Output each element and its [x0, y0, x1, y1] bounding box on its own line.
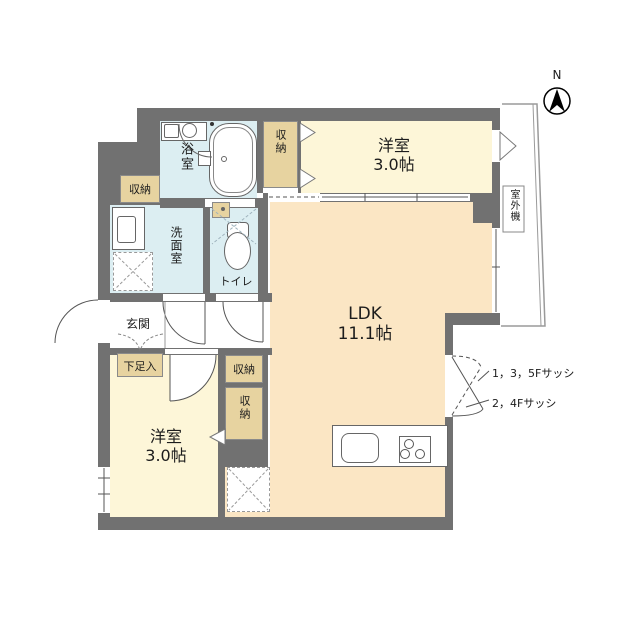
- bedroom-bottom-size: 3.0帖: [116, 446, 216, 465]
- remote-panel-dot: [221, 207, 225, 211]
- label-compass-north: N: [549, 68, 565, 82]
- shoe-cabinet-door-arcs: [118, 334, 163, 351]
- burner-icon: [416, 450, 425, 459]
- label-washroom: 洗面室: [168, 226, 185, 265]
- label-bedroom-bottom: 洋室 3.0帖: [116, 427, 216, 465]
- closet-door-triangle-icon: [300, 123, 315, 142]
- label-storage-hall: 収納: [225, 361, 263, 377]
- ldk-name: LDK: [315, 304, 415, 324]
- label-toilet: トイレ: [214, 273, 258, 289]
- label-sash-135: 1，3，5Fサッシ: [492, 365, 574, 381]
- label-storage-bedroom-top: 収納: [272, 129, 288, 155]
- label-bathroom: 浴室: [176, 142, 195, 172]
- burner-icon: [405, 440, 414, 449]
- washer-x-mark: [115, 254, 151, 289]
- bedroom-bottom-name: 洋室: [116, 427, 216, 446]
- label-ldk: LDK 11.1帖: [315, 304, 415, 344]
- label-storage-bedroom-bottom: 収納: [236, 395, 252, 421]
- label-storage-top-left: 収納: [120, 181, 160, 197]
- closet-door-triangle-icon: [300, 169, 315, 188]
- label-outdoor-unit: 室外機: [506, 189, 521, 222]
- ldk-window-line: [492, 229, 500, 312]
- bedroom-top-size: 3.0帖: [344, 155, 444, 174]
- bathroom-door-hinge: [210, 122, 214, 126]
- label-sash-24: 2，4Fサッシ: [492, 395, 556, 411]
- ldk-size: 11.1帖: [315, 324, 415, 344]
- floor-plan: 浴室 収納 収納 洋室 3.0帖 室外機 洗面室 トイレ 玄関 下足入 収納 収…: [0, 0, 640, 640]
- bedroom-top-name: 洋室: [344, 136, 444, 155]
- bedroom-window-line: [98, 468, 110, 512]
- refrigerator-x-mark: [229, 469, 268, 510]
- sliding-partition-line: [322, 193, 468, 201]
- sash-leader-lines: [466, 371, 489, 407]
- label-bedroom-top: 洋室 3.0帖: [344, 136, 444, 174]
- entrance-door-arc: [55, 300, 98, 343]
- balcony-rail-line: [533, 104, 541, 326]
- toilet-door-dashes: [212, 209, 256, 244]
- label-entrance: 玄関: [118, 315, 158, 332]
- balcony-door-triangle-icon: [500, 132, 516, 160]
- burner-icon: [401, 450, 410, 459]
- label-shoe-cabinet: 下足入: [117, 358, 163, 374]
